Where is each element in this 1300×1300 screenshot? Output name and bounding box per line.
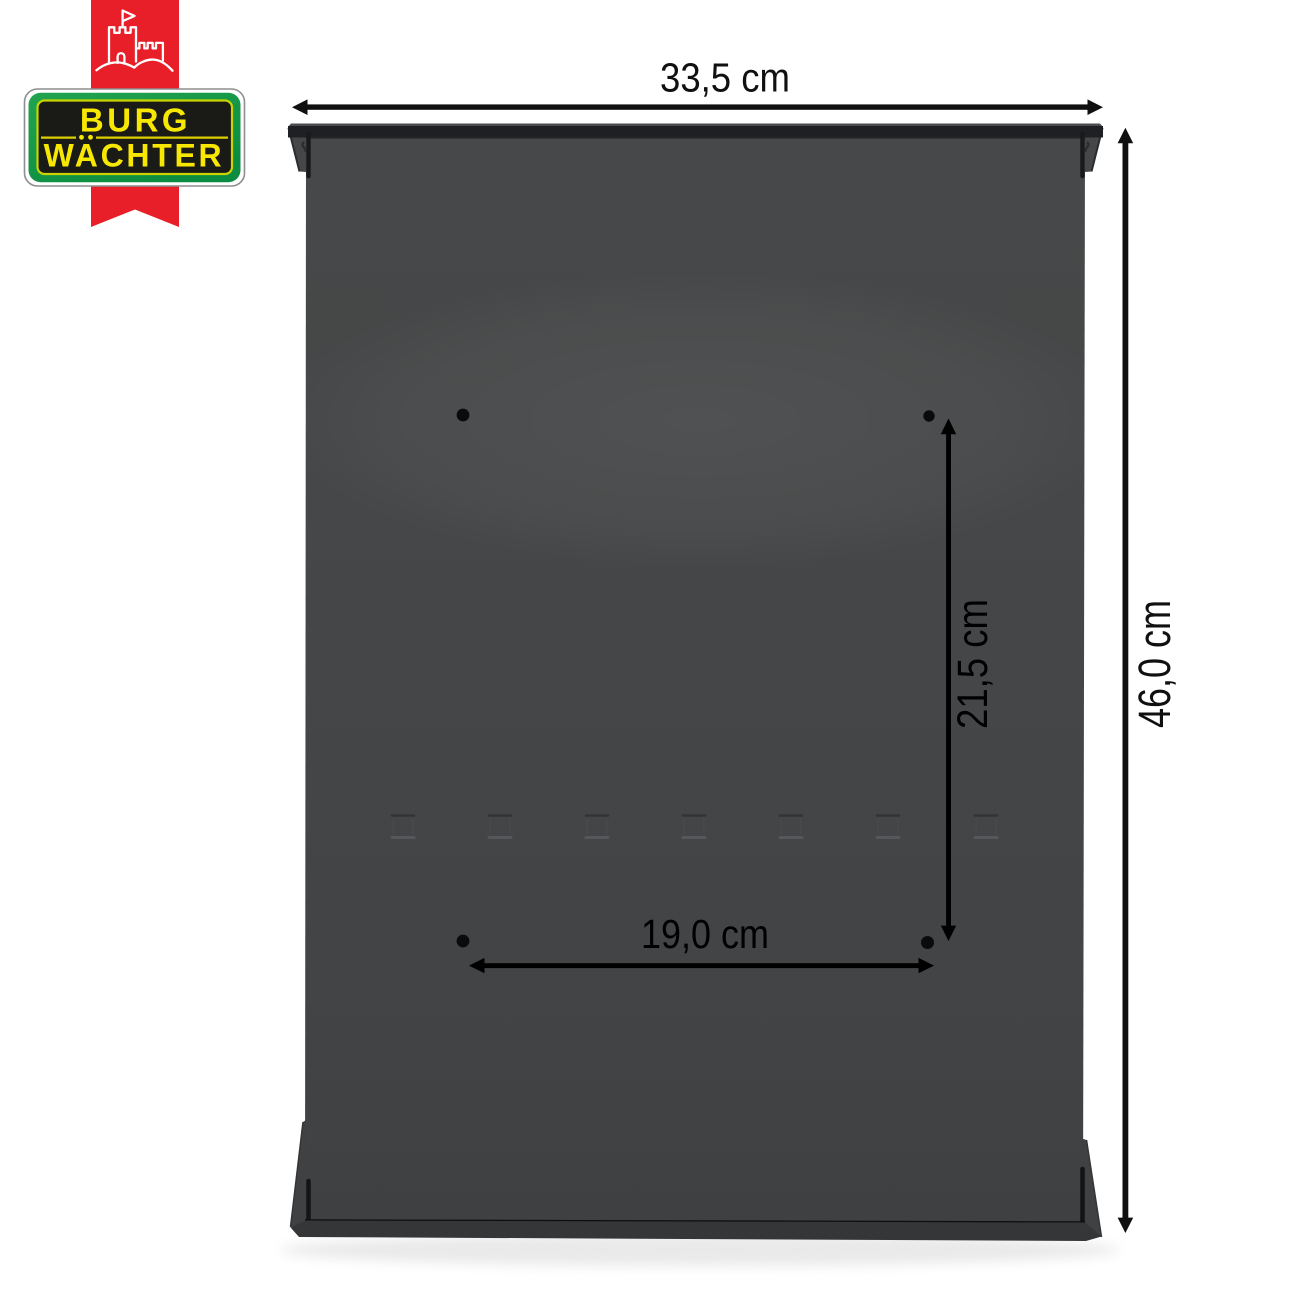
svg-text:33,5 cm: 33,5 cm [660, 55, 790, 101]
svg-text:21,5 cm: 21,5 cm [949, 599, 997, 729]
svg-text:WACHTER: WACHTER [44, 138, 225, 174]
svg-text:19,0 cm: 19,0 cm [641, 911, 769, 957]
svg-text:46,0 cm: 46,0 cm [1129, 600, 1180, 728]
svg-text:BURG: BURG [80, 102, 191, 139]
